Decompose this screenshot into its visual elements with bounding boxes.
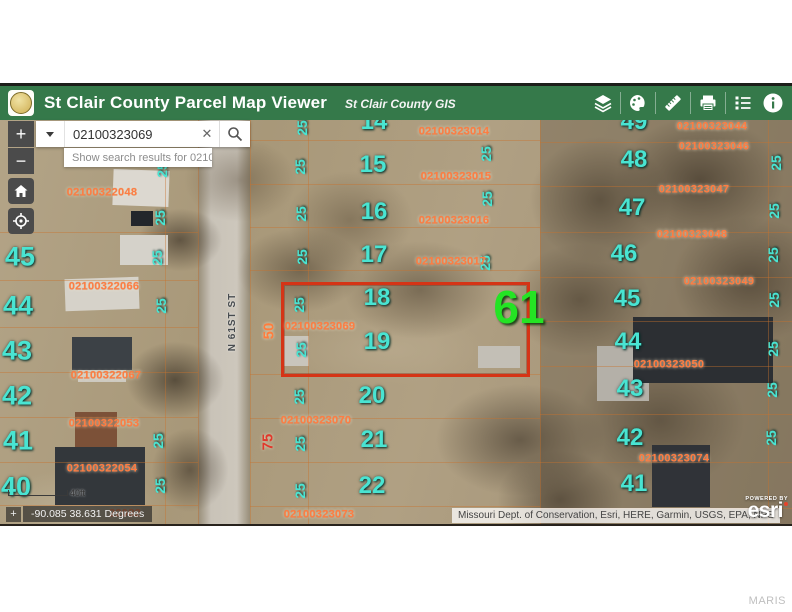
county-seal-icon (10, 92, 32, 114)
dimension-label: 25 (154, 298, 168, 314)
layers-icon[interactable] (588, 90, 618, 116)
lot-number: 22 (359, 474, 386, 498)
dimension-label: 25 (767, 203, 781, 219)
dimension-label: 25 (766, 341, 780, 357)
parcel-id-label: 02100322054 (67, 464, 138, 475)
lot-number: 45 (5, 244, 35, 271)
print-icon[interactable] (693, 90, 723, 116)
parcel-id-label: 02100323050 (634, 360, 705, 371)
parcel-id-label: 02100323047 (659, 185, 730, 196)
info-icon[interactable] (758, 90, 788, 116)
lot-number: 48 (621, 148, 648, 172)
dimension-label: 25 (151, 433, 165, 449)
clear-search-icon[interactable]: ✕ (195, 121, 219, 147)
dimension-label: 25 (480, 191, 494, 207)
dimension-label: 75 (261, 434, 276, 451)
coordinate-value: -90.085 38.631 Degrees (23, 506, 152, 522)
parcel-id-label: 02100323017 (416, 257, 487, 268)
dimension-label: 25 (295, 249, 309, 265)
building (55, 447, 145, 505)
parcel-id-label: 02100323046 (679, 142, 750, 153)
dimension-label: 25 (150, 250, 164, 266)
header-toolbar (588, 86, 788, 120)
lot-number: 47 (619, 196, 646, 220)
dimension-label: 25 (293, 483, 307, 499)
parcel-id-label: 02100323073 (284, 510, 355, 521)
dimension-label: 25 (294, 206, 308, 222)
lot-number: 17 (361, 243, 388, 267)
parcel-id-label: 02100323015 (421, 172, 492, 183)
parcel-id-label: 02100323016 (419, 216, 490, 227)
lot-number: 21 (361, 428, 388, 452)
lot-number: 40 (1, 474, 31, 501)
parcel-id-label: 02100323069 (285, 322, 356, 333)
home-button[interactable] (8, 178, 34, 204)
map-canvas[interactable]: 7454443424140141516171819202122494847464… (0, 120, 792, 524)
building (633, 317, 773, 383)
parcel-id-label: 02100322053 (69, 419, 140, 430)
dimension-label: 25 (295, 120, 309, 136)
parcel-id-label: 02100323070 (281, 416, 352, 427)
lot-number: 15 (360, 153, 387, 177)
lot-number: 44 (615, 330, 642, 354)
lot-number: 20 (359, 384, 386, 408)
lot-number: 14 (361, 120, 388, 134)
parcel-id-label: 02100323074 (639, 454, 710, 465)
dimension-label: 25 (294, 342, 308, 358)
parcel-id-label: 02100323049 (684, 277, 755, 288)
parcel-id-label: 02100323014 (419, 127, 490, 138)
scale-bar (8, 490, 68, 496)
coordinate-readout: + -90.085 38.631 Degrees (6, 506, 152, 522)
draw-icon[interactable] (623, 90, 653, 116)
app-header: St Clair County Parcel Map Viewer St Cla… (0, 86, 792, 120)
app-subtitle: St Clair County GIS (345, 97, 456, 111)
lot-number: 41 (621, 472, 648, 496)
search-suggestion[interactable]: Show search results for 02100... (64, 148, 212, 167)
dimension-label: 25 (293, 159, 307, 175)
building (131, 211, 153, 226)
zoom-in-button[interactable]: + (8, 121, 34, 147)
legend-icon[interactable] (728, 90, 758, 116)
zoom-out-button[interactable]: − (8, 148, 34, 174)
dimension-label: 25 (764, 430, 778, 446)
lot-number: 18 (364, 286, 391, 310)
dimension-label: 25 (292, 297, 306, 313)
county-logo (8, 90, 34, 116)
app-title: St Clair County Parcel Map Viewer (44, 93, 327, 113)
lot-number: 42 (617, 426, 644, 450)
lot-number: 45 (614, 287, 641, 311)
parcel-id-label: 02100322048 (67, 188, 138, 199)
esri-wordmark: esri (742, 502, 788, 521)
lot-number: 16 (361, 200, 388, 224)
road-label: N 61ST ST (228, 293, 238, 351)
lot-number: 46 (611, 242, 638, 266)
lot-number: 19 (364, 330, 391, 354)
measure-icon[interactable] (658, 90, 688, 116)
search-input[interactable] (65, 121, 195, 147)
dimension-label: 25 (293, 436, 307, 452)
dimension-label: 25 (766, 247, 780, 263)
dimension-label: 25 (479, 146, 493, 162)
lot-number: 41 (3, 428, 33, 455)
lot-number: 43 (617, 377, 644, 401)
parcel-map-viewer-window: St Clair County Parcel Map Viewer St Cla… (0, 0, 792, 612)
lot-number: 49 (621, 120, 648, 134)
dimension-label: 25 (765, 382, 779, 398)
dimension-label: 50 (262, 323, 277, 340)
search-suggestion-text: Show search results for 02100... (64, 152, 212, 164)
search-button[interactable] (219, 121, 250, 147)
highlighted-lot-number: 61 (493, 284, 544, 330)
parcel-id-label: 02100323048 (657, 230, 728, 241)
dimension-label: 25 (153, 210, 167, 226)
lot-number: 44 (3, 293, 33, 320)
maris-watermark: MARIS (749, 595, 786, 607)
dimension-label: 25 (767, 292, 781, 308)
coordinate-crosshair-icon[interactable]: + (6, 507, 21, 522)
scale-label: 40ft (70, 488, 85, 498)
locate-button[interactable] (8, 208, 34, 234)
dimension-label: 25 (292, 389, 306, 405)
lot-number: 42 (2, 383, 32, 410)
dimension-label: 25 (153, 478, 167, 494)
search-source-dropdown[interactable] (36, 121, 65, 147)
dimension-label: 25 (769, 155, 783, 171)
map-attribution: Missouri Dept. of Conservation, Esri, HE… (452, 508, 780, 523)
esri-logo: POWERED BY esri (742, 496, 788, 521)
esri-dot-icon (784, 502, 788, 506)
parcel-id-label: 02100323044 (677, 122, 748, 133)
parcel-id-label: 02100322067 (71, 371, 142, 382)
building (72, 337, 132, 370)
search-bar: ✕ (36, 121, 250, 147)
parcel-id-label: 02100322066 (69, 282, 140, 293)
lot-number: 43 (2, 338, 32, 365)
